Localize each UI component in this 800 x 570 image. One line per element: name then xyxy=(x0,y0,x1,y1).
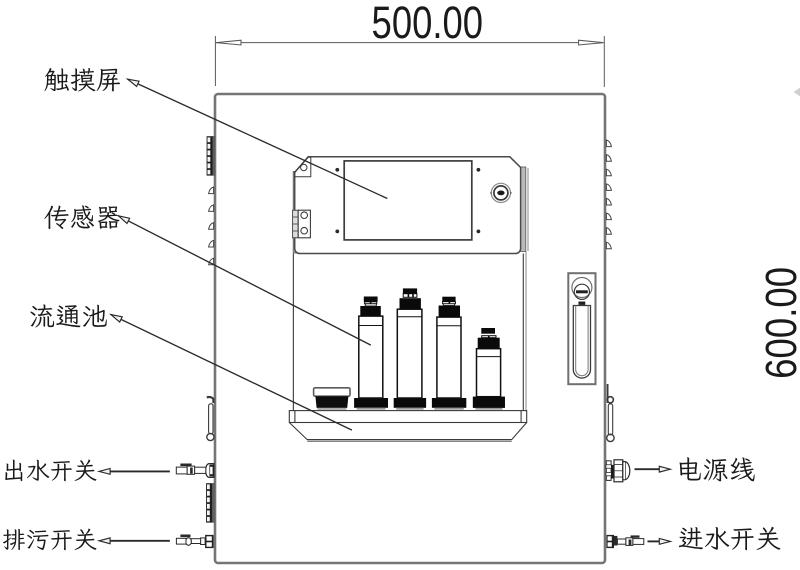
svg-text:500.00: 500.00 xyxy=(372,0,484,48)
svg-text:600.00: 600.00 xyxy=(758,267,800,379)
